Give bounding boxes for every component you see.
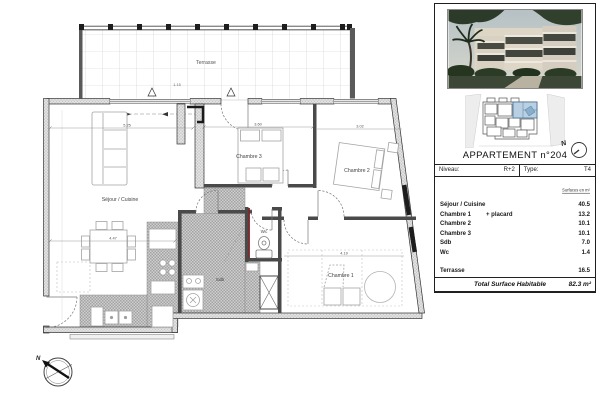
apartment-info-panel: N APPARTEMENT n°204 Niveau: R+2 Type: T4… <box>434 3 596 293</box>
terrace-dimension: 1.15 <box>173 83 180 87</box>
surface-row: Chambre 1+ placard13.2 <box>440 211 590 221</box>
dining-table <box>82 222 136 272</box>
panel-north-label: N <box>560 140 568 149</box>
terrace-left-wall <box>79 30 83 100</box>
terrace-right-wall <box>350 28 355 102</box>
surface-row: Chambre 210.1 <box>440 220 590 230</box>
terrace: Terrasse 1.15 <box>79 24 355 102</box>
chambre2-label: Chambre 2 <box>344 168 370 174</box>
door-kitchen-balcony <box>47 297 78 328</box>
surface-row: Wc1.4 <box>440 249 590 259</box>
plan-sheet: Terrasse 1.15 <box>0 0 600 417</box>
sofa <box>92 112 127 185</box>
terrace-label: Terrasse <box>196 60 216 66</box>
north-compass: N <box>36 356 72 386</box>
type-value: T4 <box>584 165 591 176</box>
toilet <box>256 237 272 259</box>
surface-table: Séjour / Cuisine40.5 Chambre 1+ placard1… <box>435 197 595 277</box>
dim-chambre3-width: 3.60 <box>254 122 262 127</box>
site-plan-thumbnail <box>465 94 565 148</box>
window-chambre3 <box>262 99 300 105</box>
niveau-value: R+2 <box>504 165 515 176</box>
dim-chambre2-width: 3.02 <box>356 124 364 129</box>
surfaces-note: Surfaces en m² <box>435 177 595 197</box>
surface-row: Terrasse16.5 <box>440 267 590 277</box>
building-render-image <box>447 9 583 89</box>
total-surface-row: Total Surface Habitable 82.3 m² <box>435 277 595 292</box>
bed-chambre1 <box>324 265 396 305</box>
surface-row: Chambre 310.1 <box>440 230 590 240</box>
door-chambre1 <box>284 220 308 244</box>
wc-label: Wc <box>261 229 268 234</box>
terrace-railing-posts <box>79 24 352 30</box>
panel-north-compass: N <box>560 135 590 161</box>
dim-sejour-width: 5.25 <box>123 123 131 128</box>
entry-closet-wall <box>177 104 185 144</box>
floor-plan-svg: Terrasse 1.15 <box>0 0 435 417</box>
chambre3-label: Chambre 3 <box>236 154 262 160</box>
chambre1-label: Chambre 1 <box>328 273 354 279</box>
north-needle <box>46 363 69 378</box>
parcel-left <box>465 94 481 148</box>
round-chair <box>365 272 396 303</box>
sejour-label: Séjour / Cuisine <box>102 197 139 203</box>
window-chambre2 <box>334 99 378 105</box>
total-value: 82.3 <box>569 281 582 288</box>
wc-red-wall-marking <box>249 208 250 261</box>
surface-row: Séjour / Cuisine40.5 <box>440 201 590 211</box>
panel-north-needle <box>574 150 579 154</box>
north-label: N <box>36 356 41 362</box>
total-label: Total Surface Habitable <box>435 281 557 288</box>
unit-204-highlight <box>513 102 537 118</box>
surface-row: Sdb7.0 <box>440 239 590 249</box>
dim-sejour-depth: 4.47 <box>109 236 117 241</box>
type-label: Type: <box>524 165 539 176</box>
niveau-label: Niveau: <box>439 165 459 176</box>
door-chambre2 <box>318 191 344 217</box>
dim-chambre1-width: 4.19 <box>340 251 348 256</box>
level-type-row: Niveau: R+2 Type: T4 <box>435 164 595 177</box>
floor-plan: Terrasse 1.15 <box>0 0 435 417</box>
lower-ledge <box>70 335 174 340</box>
sdb-label: Sdb <box>216 277 225 282</box>
total-unit: m² <box>583 281 591 288</box>
